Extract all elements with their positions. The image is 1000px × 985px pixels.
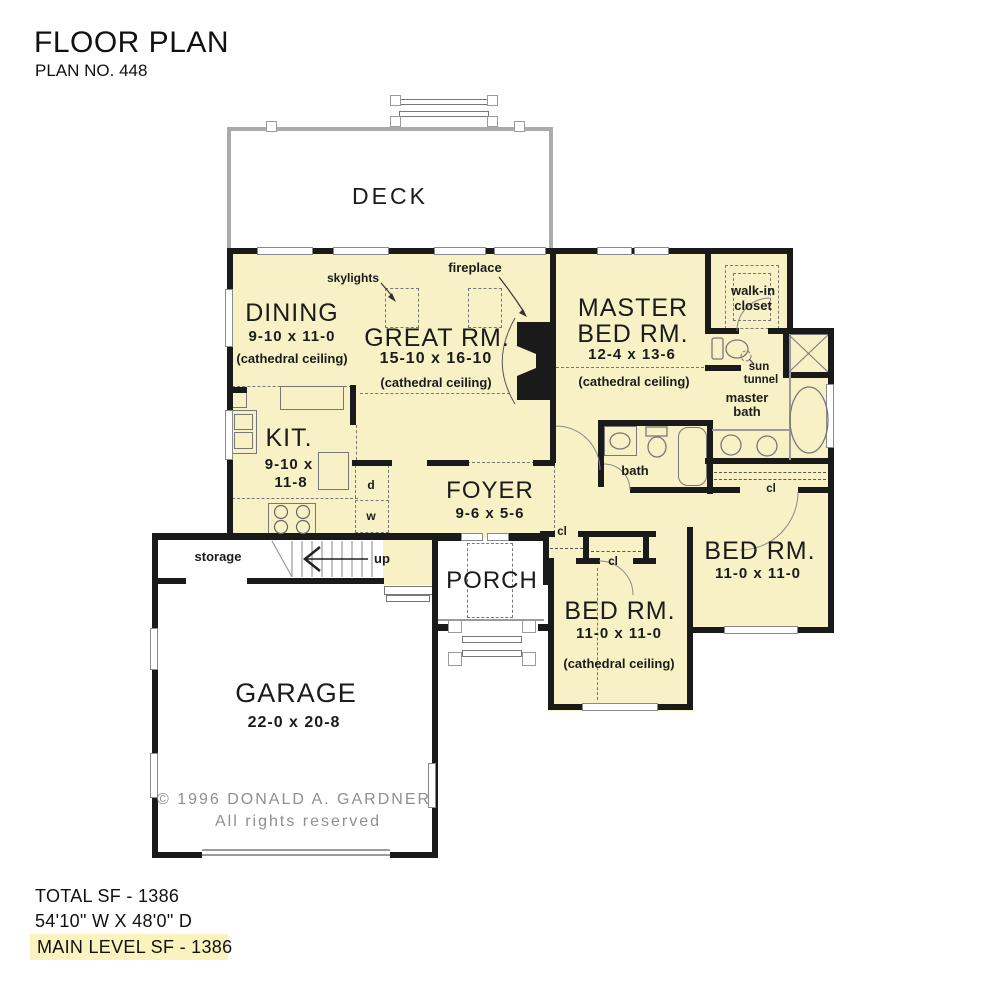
bedroom2-note: (cathedral ceiling) (563, 656, 674, 671)
fixture-outline (462, 650, 522, 657)
window-marker (225, 289, 233, 347)
dashed-line (355, 500, 389, 501)
wall-segment (427, 460, 469, 466)
copyright-line-2: All rights reserved (215, 813, 381, 831)
sun-tunnel-label-2: tunnel (744, 374, 779, 386)
garage-dims: 22-0 x 20-8 (248, 714, 341, 732)
copyright-line-1: © 1996 DONALD A. GARDNER (157, 791, 431, 809)
wall-segment (432, 624, 448, 631)
window-marker (494, 247, 546, 255)
master-bath-label-1: master (726, 390, 769, 405)
closet-label-hall: cl (766, 483, 776, 495)
window-marker (826, 384, 834, 448)
wall-segment (787, 328, 833, 334)
dashed-line (556, 367, 704, 368)
master-bed-label-2: BED RM. (577, 320, 688, 349)
gray-line (438, 619, 544, 621)
closet-rod-line (591, 551, 641, 552)
wall-segment (576, 558, 600, 564)
dashed-line (356, 425, 357, 460)
dashed-line (232, 498, 358, 499)
fixture-outline (280, 386, 344, 410)
post-marker (448, 619, 462, 633)
closet-label-left: cl (557, 526, 567, 538)
wall-segment (432, 533, 438, 858)
wall-segment (705, 365, 741, 371)
great-room-label: GREAT RM. (364, 324, 510, 353)
window-marker (487, 533, 509, 541)
dining-dims: 9-10 x 11-0 (249, 328, 336, 345)
window-marker (333, 247, 389, 255)
bathtub-icon (678, 427, 707, 486)
wall-segment (352, 460, 392, 466)
fireplace-label: fireplace (448, 260, 501, 275)
bedroom3-label: BED RM. (704, 537, 815, 566)
dashed-line (360, 393, 510, 394)
wall-segment (598, 420, 604, 487)
bedroom3-dims: 11-0 x 11-0 (715, 565, 801, 582)
bedroom2-dims: 11-0 x 11-0 (576, 625, 662, 642)
wall-segment (437, 533, 464, 541)
window-marker (634, 247, 669, 255)
dashed-outline (385, 288, 419, 328)
gray-line (202, 854, 390, 856)
washer-label: w (366, 509, 375, 523)
up-arrow (305, 547, 368, 571)
overall-dims: 54'10" W X 48'0" D (35, 911, 192, 932)
fixture-outline (399, 99, 489, 105)
walkin-closet-label-1: walk-in (731, 283, 775, 298)
gray-line (789, 334, 791, 460)
gray-line (712, 429, 790, 431)
bath-label: bath (621, 463, 648, 478)
window-marker (597, 247, 632, 255)
wall-segment (540, 531, 555, 537)
kitchen-dims-1: 9-10 x (265, 456, 314, 473)
wall-segment (785, 372, 833, 378)
bedroom2-label: BED RM. (564, 597, 675, 626)
garage-label: GARAGE (235, 678, 357, 709)
fixture-outline (604, 426, 637, 456)
wall-segment (687, 527, 693, 710)
fixture-outline (386, 595, 430, 602)
wall-segment (350, 385, 356, 425)
fixture-outline (399, 111, 489, 117)
porch-label: PORCH (446, 567, 538, 595)
post-marker (514, 121, 525, 132)
window-marker (582, 703, 658, 711)
fixture-outline (234, 414, 253, 430)
wall-segment (152, 578, 186, 584)
walkin-closet-label-2: closet (734, 298, 772, 313)
closet-rod-line (714, 472, 826, 473)
fixture-outline (234, 432, 253, 449)
wall-segment (152, 852, 202, 858)
post-marker (448, 652, 462, 666)
dining-label: DINING (245, 299, 339, 328)
post-marker (390, 95, 401, 106)
dining-note: (cathedral ceiling) (236, 351, 347, 366)
stairs-up-label: up (374, 551, 390, 566)
window-marker (225, 410, 233, 460)
post-marker (522, 652, 536, 666)
wall-segment (705, 458, 833, 464)
wall-segment (600, 420, 712, 426)
wall-segment (708, 248, 792, 254)
foyer-label: FOYER (446, 477, 534, 505)
dashed-line (554, 465, 555, 533)
wall-segment (247, 578, 384, 584)
kitchen-dims-2: 11-8 (274, 474, 307, 491)
post-marker (487, 116, 498, 127)
wall-segment (538, 624, 550, 631)
plan-number: PLAN NO. 448 (35, 61, 147, 81)
closet-label-bed2: cl (608, 556, 618, 568)
window-marker (150, 628, 158, 670)
wall-segment (633, 558, 656, 564)
master-bath-label-2: bath (733, 404, 760, 419)
master-bed-label-1: MASTER (578, 294, 688, 323)
dashed-outline (468, 288, 502, 328)
great-room-dims: 15-10 x 16-10 (380, 350, 493, 368)
post-marker (522, 619, 536, 633)
fixture-outline (462, 636, 522, 643)
wall-segment (705, 252, 711, 334)
deck-label: DECK (352, 183, 428, 210)
floor-plan-canvas: FLOOR PLAN PLAN NO. 448 (0, 0, 1000, 985)
post-marker (266, 121, 277, 132)
wall-segment (390, 852, 438, 858)
total-sf: TOTAL SF - 1386 (35, 886, 179, 907)
fixture-outline (788, 334, 829, 373)
wall-segment (798, 487, 833, 493)
kitchen-label: KIT. (265, 424, 312, 453)
wall-segment (630, 487, 740, 493)
sun-tunnel-label-1: sun (749, 361, 769, 373)
wall-segment (550, 252, 556, 463)
foyer-dims: 9-6 x 5-6 (455, 505, 524, 522)
dryer-label: d (367, 478, 374, 492)
wall-segment (787, 248, 793, 334)
dashed-line (467, 462, 535, 463)
wall-segment (707, 420, 713, 494)
gray-line (202, 849, 390, 851)
room-area (383, 535, 437, 585)
main-level-sf: MAIN LEVEL SF - 1386 (37, 937, 232, 958)
storage-label: storage (195, 549, 242, 564)
master-bed-note: (cathedral ceiling) (578, 374, 689, 389)
window-marker (257, 247, 313, 255)
fixture-outline (268, 503, 316, 534)
great-room-note: (cathedral ceiling) (380, 375, 491, 390)
master-bed-dims: 12-4 x 13-6 (588, 346, 676, 363)
wall-segment (152, 533, 438, 540)
stair-treads (272, 541, 372, 577)
window-marker (461, 533, 483, 541)
fixture-outline (318, 452, 349, 490)
window-marker (434, 247, 486, 255)
post-marker (390, 116, 401, 127)
closet-rod-line (714, 479, 826, 480)
closet-rod-line (550, 548, 583, 549)
wall-segment (227, 387, 247, 393)
fixture-outline (384, 586, 434, 595)
page-title: FLOOR PLAN (34, 26, 229, 60)
skylights-label: skylights (327, 271, 379, 285)
post-marker (487, 95, 498, 106)
window-marker (724, 626, 798, 634)
